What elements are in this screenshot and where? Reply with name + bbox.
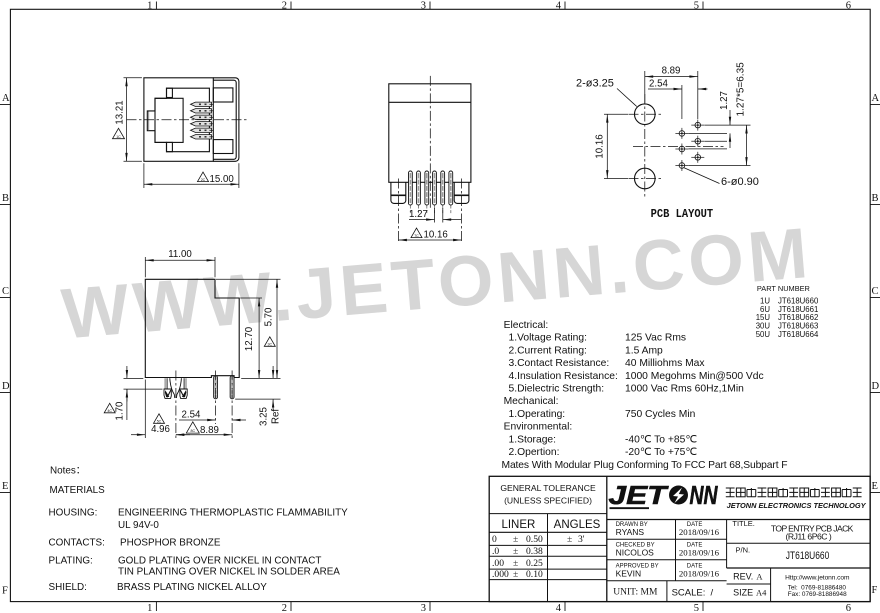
svg-text:D: D bbox=[2, 381, 10, 392]
svg-text:2-ø3.25: 2-ø3.25 bbox=[576, 78, 614, 90]
svg-text:5.70: 5.70 bbox=[264, 307, 275, 326]
svg-text:5: 5 bbox=[694, 603, 699, 613]
svg-text:-40℃ To +85℃: -40℃ To +85℃ bbox=[625, 434, 697, 445]
svg-text:5C: 5C bbox=[157, 420, 162, 424]
svg-text:±: ± bbox=[513, 534, 518, 545]
svg-text:E: E bbox=[2, 481, 8, 492]
svg-text:NICOLOS: NICOLOS bbox=[616, 547, 655, 557]
svg-text:5: 5 bbox=[694, 0, 699, 11]
svg-text:3.25: 3.25 bbox=[259, 407, 270, 426]
svg-text:8C: 8C bbox=[190, 429, 195, 433]
svg-text:PCB LAYOUT: PCB LAYOUT bbox=[651, 207, 714, 221]
svg-text:3': 3' bbox=[578, 534, 585, 545]
svg-text:.000: .000 bbox=[492, 569, 509, 580]
svg-text:A4: A4 bbox=[756, 587, 767, 597]
svg-text:BRASS PLATING NICKEL ALLOY: BRASS PLATING NICKEL ALLOY bbox=[117, 582, 267, 593]
svg-text:4.96: 4.96 bbox=[151, 424, 170, 435]
svg-text:40 Milliohms Max: 40 Milliohms Max bbox=[625, 358, 705, 369]
svg-text:MATERIALS: MATERIALS bbox=[50, 485, 106, 496]
svg-text:±: ± bbox=[513, 558, 518, 569]
svg-text:MM: MM bbox=[641, 588, 658, 598]
svg-text:10.16: 10.16 bbox=[424, 229, 448, 240]
svg-text:0.10: 0.10 bbox=[526, 569, 543, 580]
svg-text:2018/09/16: 2018/09/16 bbox=[679, 547, 720, 557]
svg-text:2.54: 2.54 bbox=[182, 410, 201, 421]
svg-text:LINER: LINER bbox=[501, 519, 535, 531]
svg-text:A: A bbox=[756, 572, 763, 582]
svg-text:1.Operating:: 1.Operating: bbox=[509, 409, 566, 420]
svg-text:1000 Vac Rms 60Hz,1Min: 1000 Vac Rms 60Hz,1Min bbox=[625, 384, 744, 395]
svg-text:4.Insulation Resistance:: 4.Insulation Resistance: bbox=[509, 371, 618, 382]
svg-text:1.70: 1.70 bbox=[115, 401, 126, 420]
svg-text:1: 1 bbox=[147, 0, 152, 11]
svg-text:±: ± bbox=[513, 569, 518, 580]
svg-text:C: C bbox=[2, 286, 9, 297]
svg-text:3: 3 bbox=[421, 603, 426, 613]
svg-text:ENGINEERING THERMOPLASTIC FLAM: ENGINEERING THERMOPLASTIC FLAMMABILITY bbox=[118, 508, 348, 519]
svg-text:Ref: Ref bbox=[270, 409, 281, 424]
svg-text:3C: 3C bbox=[267, 343, 272, 347]
svg-text:13.21: 13.21 bbox=[115, 100, 126, 124]
svg-text:1.27: 1.27 bbox=[409, 209, 428, 220]
svg-text:750 Cycles Min: 750 Cycles Min bbox=[625, 409, 696, 420]
svg-text:8.89: 8.89 bbox=[662, 66, 681, 77]
svg-text:JETONN ELECTRONICS TECHNOLOGY: JETONN ELECTRONICS TECHNOLOGY bbox=[727, 501, 867, 510]
svg-text:Fax: 0769-81886948: Fax: 0769-81886948 bbox=[788, 591, 847, 598]
svg-text:0.50: 0.50 bbox=[526, 534, 543, 545]
svg-text:1.27*5=6.35: 1.27*5=6.35 bbox=[735, 62, 746, 117]
svg-text:P/N.: P/N. bbox=[736, 546, 751, 555]
svg-text:F: F bbox=[872, 585, 878, 596]
svg-text:KEVIN: KEVIN bbox=[616, 568, 642, 578]
svg-text:Notes：: Notes： bbox=[50, 466, 86, 477]
svg-text:REV.: REV. bbox=[733, 572, 753, 582]
svg-text:8.89: 8.89 bbox=[200, 425, 219, 436]
svg-text:PLATING:: PLATING: bbox=[49, 556, 93, 567]
svg-text:4C: 4C bbox=[107, 409, 112, 413]
svg-text:6: 6 bbox=[846, 0, 851, 11]
svg-text:1.Storage:: 1.Storage: bbox=[509, 434, 557, 445]
svg-text:1.Voltage Rating:: 1.Voltage Rating: bbox=[509, 333, 587, 344]
svg-text:±: ± bbox=[513, 546, 518, 557]
svg-text:6-ø0.90: 6-ø0.90 bbox=[721, 176, 759, 188]
svg-text:2.54: 2.54 bbox=[649, 79, 668, 90]
svg-text:CONTACTS:: CONTACTS: bbox=[49, 538, 105, 549]
svg-text:3: 3 bbox=[421, 0, 426, 11]
svg-text:C: C bbox=[872, 286, 879, 297]
svg-text:B: B bbox=[2, 193, 9, 204]
svg-text:1.27: 1.27 bbox=[719, 91, 730, 110]
svg-text:12.70: 12.70 bbox=[244, 326, 255, 351]
svg-text:2.Current Rating:: 2.Current Rating: bbox=[509, 345, 587, 356]
svg-text:10.16: 10.16 bbox=[595, 134, 606, 158]
svg-text:±: ± bbox=[567, 534, 572, 545]
svg-text:.00: .00 bbox=[492, 558, 504, 569]
svg-text:NN: NN bbox=[690, 482, 718, 510]
svg-text:Mates With Modular Plug Confor: Mates With Modular Plug Conforming To FC… bbox=[502, 460, 788, 471]
svg-text:3.Contact Resistance:: 3.Contact Resistance: bbox=[509, 358, 610, 369]
svg-text:Mechanical:: Mechanical: bbox=[504, 396, 559, 407]
svg-text:1.5 Amp: 1.5 Amp bbox=[625, 345, 663, 356]
svg-text:2018/09/16: 2018/09/16 bbox=[679, 568, 720, 578]
svg-text:GOLD PLATING OVER NICKEL IN CO: GOLD PLATING OVER NICKEL IN CONTACT bbox=[118, 556, 321, 567]
svg-text:15.00: 15.00 bbox=[210, 174, 235, 185]
svg-text:B: B bbox=[872, 193, 879, 204]
svg-text:(RJ11 6P6C ): (RJ11 6P6C ) bbox=[786, 532, 832, 542]
svg-text:GENERAL TOLERANCE: GENERAL TOLERANCE bbox=[500, 483, 596, 493]
svg-text:A: A bbox=[872, 93, 880, 104]
svg-text:2: 2 bbox=[282, 603, 287, 613]
svg-text:1C: 1C bbox=[116, 135, 121, 139]
svg-text:HOUSING:: HOUSING: bbox=[49, 508, 98, 519]
svg-text:E: E bbox=[872, 481, 878, 492]
svg-text:2.Opertion:: 2.Opertion: bbox=[509, 447, 560, 458]
svg-text:UNIT:: UNIT: bbox=[613, 588, 638, 598]
svg-text:2018/09/16: 2018/09/16 bbox=[679, 527, 720, 537]
svg-text:TITLE.: TITLE. bbox=[732, 519, 755, 528]
svg-text:0.25: 0.25 bbox=[526, 558, 543, 569]
svg-text:Environmental:: Environmental: bbox=[504, 422, 573, 433]
svg-text:1: 1 bbox=[147, 603, 152, 613]
svg-text:.0: .0 bbox=[492, 546, 499, 557]
svg-text:RYANS: RYANS bbox=[616, 527, 645, 537]
svg-text:0: 0 bbox=[492, 534, 497, 545]
svg-text:0.38: 0.38 bbox=[526, 546, 543, 557]
svg-text:2: 2 bbox=[282, 0, 287, 11]
svg-text:SCALE:: SCALE: bbox=[672, 588, 706, 599]
svg-text:SHIELD:: SHIELD: bbox=[49, 582, 87, 593]
svg-text:1000 Megohms Min@500 Vdc: 1000 Megohms Min@500 Vdc bbox=[625, 371, 764, 382]
svg-text:(UNLESS SPECIFIED): (UNLESS SPECIFIED) bbox=[504, 496, 592, 506]
svg-text:ANGLES: ANGLES bbox=[554, 519, 601, 531]
svg-text:7C: 7C bbox=[414, 234, 419, 238]
svg-text:-20℃ To +75℃: -20℃ To +75℃ bbox=[625, 447, 697, 458]
svg-text:4: 4 bbox=[556, 0, 562, 11]
svg-text:JT618U660: JT618U660 bbox=[786, 550, 830, 562]
svg-text:PART NUMBER: PART NUMBER bbox=[757, 284, 810, 293]
svg-text:JT618U664: JT618U664 bbox=[778, 330, 819, 339]
svg-text:F: F bbox=[2, 586, 8, 597]
svg-text:PHOSPHOR BRONZE: PHOSPHOR BRONZE bbox=[120, 538, 221, 549]
svg-text:50U: 50U bbox=[756, 330, 771, 339]
svg-text:UL 94V-0: UL 94V-0 bbox=[118, 520, 159, 531]
svg-text:Electrical:: Electrical: bbox=[504, 320, 549, 331]
svg-text:Http://www.jetonn.com: Http://www.jetonn.com bbox=[785, 575, 850, 582]
svg-text:JET: JET bbox=[609, 482, 670, 510]
svg-text:4: 4 bbox=[556, 603, 562, 613]
svg-text:6: 6 bbox=[846, 603, 851, 613]
svg-text:D: D bbox=[872, 381, 880, 392]
svg-text:TIN PLANTING OVER NICKEL IN SO: TIN PLANTING OVER NICKEL IN SOLDER AREA bbox=[118, 567, 340, 578]
svg-text:/: / bbox=[711, 588, 714, 599]
svg-text:2C: 2C bbox=[201, 178, 206, 182]
svg-text:11.00: 11.00 bbox=[168, 249, 192, 260]
svg-text:5.Dielectric Strength:: 5.Dielectric Strength: bbox=[509, 384, 605, 395]
svg-text:SIZE: SIZE bbox=[733, 587, 753, 597]
svg-text:A: A bbox=[2, 93, 10, 104]
svg-text:125 Vac Rms: 125 Vac Rms bbox=[625, 333, 686, 344]
